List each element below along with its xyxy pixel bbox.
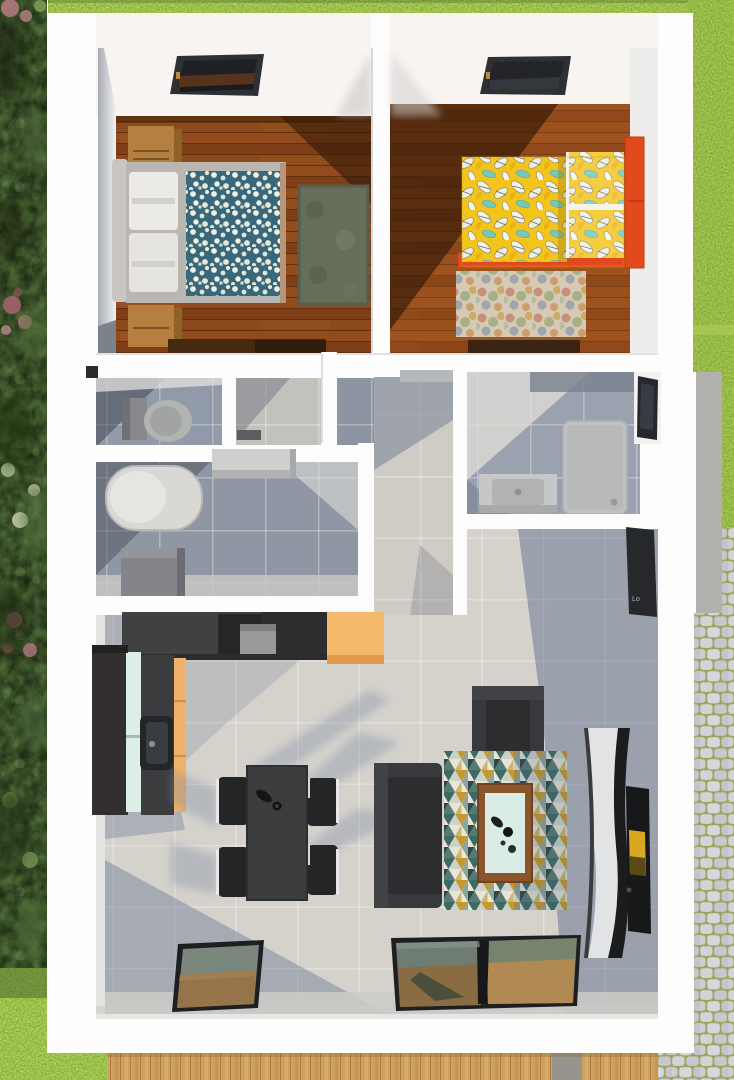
svg-text:Lo: Lo bbox=[632, 596, 640, 603]
